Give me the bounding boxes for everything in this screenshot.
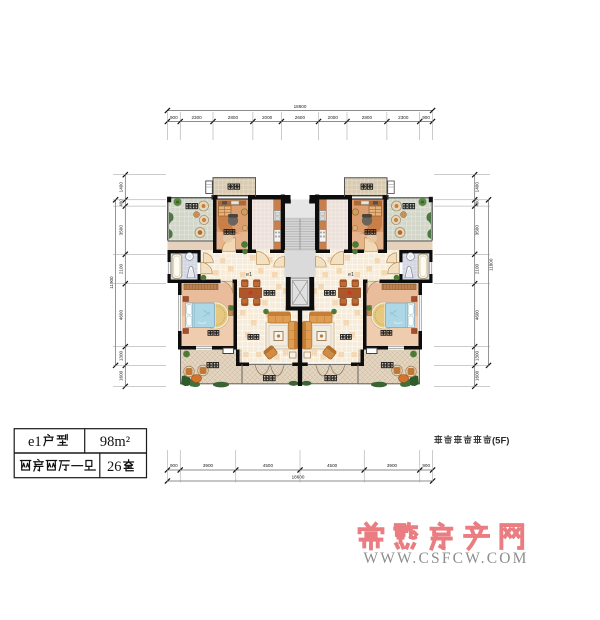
svg-text:2300: 2300 <box>191 115 202 120</box>
svg-text:26: 26 <box>107 459 122 475</box>
svg-text:3500: 3500 <box>475 225 480 236</box>
svg-text:1300: 1300 <box>475 350 480 361</box>
svg-text:18600: 18600 <box>292 475 305 480</box>
svg-text:900: 900 <box>422 115 430 120</box>
svg-text:2100: 2100 <box>119 263 124 274</box>
svg-text:1300: 1300 <box>119 350 124 361</box>
svg-text:98m²: 98m² <box>100 434 131 450</box>
svg-text:18600: 18600 <box>294 104 307 109</box>
svg-text:2600: 2600 <box>295 115 306 120</box>
svg-text:1400: 1400 <box>119 182 124 193</box>
svg-text:2800: 2800 <box>362 115 373 120</box>
svg-text:2300: 2300 <box>398 115 409 120</box>
svg-text:3900: 3900 <box>387 463 398 468</box>
svg-text:4500: 4500 <box>263 463 274 468</box>
svg-text:e1: e1 <box>246 272 252 278</box>
svg-text:900: 900 <box>170 463 178 468</box>
svg-text:900: 900 <box>422 463 430 468</box>
svg-text:WWW.CSFCW.COM: WWW.CSFCW.COM <box>363 550 528 567</box>
svg-text:4600: 4600 <box>475 310 480 321</box>
svg-text:3900: 3900 <box>203 463 214 468</box>
svg-text:(5F): (5F) <box>492 436 509 447</box>
svg-text:e1: e1 <box>28 434 42 450</box>
svg-text:2100: 2100 <box>475 263 480 274</box>
svg-text:3500: 3500 <box>119 225 124 236</box>
svg-text:1600: 1600 <box>119 370 124 381</box>
svg-text:1600: 1600 <box>475 370 480 381</box>
svg-text:2800: 2800 <box>228 115 239 120</box>
svg-text:2000: 2000 <box>328 115 339 120</box>
svg-text:e1: e1 <box>348 272 354 278</box>
svg-text:11900: 11900 <box>109 276 114 289</box>
svg-text:4500: 4500 <box>327 463 338 468</box>
svg-text:11800: 11800 <box>488 258 493 271</box>
svg-text:1400: 1400 <box>475 182 480 193</box>
svg-text:2000: 2000 <box>262 115 273 120</box>
svg-text:900: 900 <box>170 115 178 120</box>
svg-text:4600: 4600 <box>119 310 124 321</box>
